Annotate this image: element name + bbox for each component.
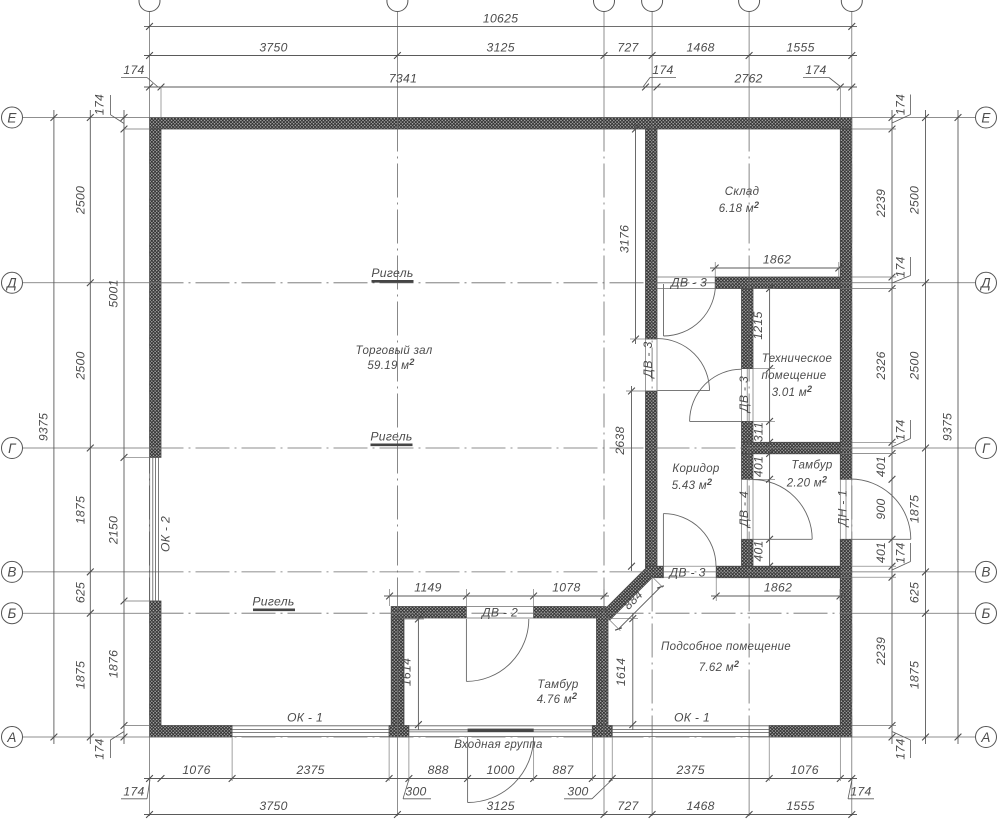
svg-text:1555: 1555 bbox=[786, 799, 814, 813]
svg-text:ДВ - 4: ДВ - 4 bbox=[737, 491, 751, 529]
svg-text:1875: 1875 bbox=[73, 661, 87, 689]
svg-text:Г: Г bbox=[8, 441, 17, 456]
svg-text:7.62 м2: 7.62 м2 bbox=[699, 659, 740, 674]
svg-text:ДВ - 3: ДВ - 3 bbox=[669, 275, 707, 289]
svg-text:Ригель: Ригель bbox=[370, 429, 412, 443]
svg-text:3176: 3176 bbox=[617, 225, 631, 253]
svg-text:Д: Д bbox=[979, 276, 991, 291]
svg-text:В: В bbox=[7, 565, 16, 580]
svg-text:2375: 2375 bbox=[295, 763, 324, 777]
svg-text:9375: 9375 bbox=[940, 413, 954, 441]
svg-text:2239: 2239 bbox=[874, 637, 888, 666]
svg-text:ОК - 1: ОК - 1 bbox=[674, 711, 710, 725]
svg-text:174: 174 bbox=[893, 94, 907, 115]
svg-text:помещение: помещение bbox=[761, 370, 826, 382]
svg-text:6.18 м2: 6.18 м2 bbox=[719, 200, 760, 215]
svg-text:5001: 5001 bbox=[106, 279, 120, 307]
svg-text:888: 888 bbox=[428, 763, 449, 777]
svg-text:2375: 2375 bbox=[676, 763, 705, 777]
svg-text:1468: 1468 bbox=[686, 799, 714, 813]
svg-text:ДВ - 3: ДВ - 3 bbox=[668, 565, 706, 579]
svg-text:Торговый зал: Торговый зал bbox=[356, 345, 433, 357]
svg-text:Г: Г bbox=[982, 441, 991, 456]
svg-text:174: 174 bbox=[123, 63, 144, 77]
svg-text:174: 174 bbox=[123, 785, 144, 799]
svg-text:Склад: Склад bbox=[725, 186, 759, 198]
svg-text:625: 625 bbox=[907, 582, 921, 603]
svg-text:401: 401 bbox=[751, 456, 765, 477]
svg-text:2239: 2239 bbox=[874, 189, 888, 218]
svg-text:174: 174 bbox=[850, 785, 871, 799]
svg-text:401: 401 bbox=[874, 456, 888, 477]
svg-text:3750: 3750 bbox=[259, 40, 287, 54]
svg-text:174: 174 bbox=[652, 63, 673, 77]
svg-text:2500: 2500 bbox=[73, 351, 87, 380]
svg-text:311: 311 bbox=[751, 422, 765, 442]
svg-text:2638: 2638 bbox=[613, 426, 627, 455]
svg-text:174: 174 bbox=[893, 738, 907, 759]
svg-text:174: 174 bbox=[805, 63, 826, 77]
svg-text:300: 300 bbox=[405, 785, 426, 799]
svg-text:ДВ - 3: ДВ - 3 bbox=[737, 376, 751, 414]
svg-text:727: 727 bbox=[617, 40, 639, 54]
svg-text:174: 174 bbox=[893, 256, 907, 277]
svg-text:3.01 м2: 3.01 м2 bbox=[772, 384, 813, 399]
svg-text:887: 887 bbox=[552, 763, 574, 777]
svg-text:1876: 1876 bbox=[106, 650, 120, 678]
svg-text:ОК - 2: ОК - 2 bbox=[159, 516, 173, 552]
svg-text:727: 727 bbox=[617, 799, 639, 813]
svg-text:1076: 1076 bbox=[791, 763, 819, 777]
svg-text:1215: 1215 bbox=[751, 311, 765, 339]
svg-text:Б: Б bbox=[7, 606, 16, 621]
svg-text:ДВ - 2: ДВ - 2 bbox=[480, 606, 518, 620]
svg-text:А: А bbox=[980, 730, 990, 745]
svg-text:1555: 1555 bbox=[786, 40, 814, 54]
svg-text:900: 900 bbox=[874, 498, 888, 519]
svg-text:2500: 2500 bbox=[907, 351, 921, 380]
svg-text:Д: Д bbox=[5, 276, 17, 291]
svg-text:1468: 1468 bbox=[686, 40, 714, 54]
svg-text:401: 401 bbox=[874, 542, 888, 563]
svg-text:А: А bbox=[6, 730, 16, 745]
svg-text:В: В bbox=[981, 565, 990, 580]
svg-text:174: 174 bbox=[92, 94, 106, 115]
svg-text:2762: 2762 bbox=[733, 71, 762, 85]
svg-text:Ригель: Ригель bbox=[371, 266, 413, 280]
svg-text:ДН - 1: ДН - 1 bbox=[836, 490, 850, 529]
svg-text:Входная группа: Входная группа bbox=[454, 739, 542, 751]
svg-text:5.43 м2: 5.43 м2 bbox=[672, 477, 713, 492]
svg-text:1862: 1862 bbox=[763, 253, 791, 267]
svg-text:174: 174 bbox=[92, 738, 106, 759]
svg-text:Техническое: Техническое bbox=[762, 353, 833, 365]
svg-text:Тамбур: Тамбур bbox=[791, 460, 833, 472]
svg-text:1614: 1614 bbox=[614, 658, 628, 686]
svg-text:174: 174 bbox=[893, 419, 907, 440]
svg-text:401: 401 bbox=[751, 540, 765, 561]
svg-text:625: 625 bbox=[73, 582, 87, 603]
svg-text:Ригель: Ригель bbox=[252, 594, 294, 608]
svg-text:3750: 3750 bbox=[259, 799, 287, 813]
svg-text:10625: 10625 bbox=[483, 12, 518, 26]
svg-text:Подсобное помещение: Подсобное помещение bbox=[661, 641, 791, 653]
svg-text:2326: 2326 bbox=[874, 351, 888, 380]
svg-text:Б: Б bbox=[981, 606, 990, 621]
svg-text:7341: 7341 bbox=[389, 71, 417, 85]
svg-text:2500: 2500 bbox=[907, 186, 921, 215]
svg-text:300: 300 bbox=[567, 785, 588, 799]
svg-text:2500: 2500 bbox=[73, 186, 87, 215]
svg-text:Е: Е bbox=[7, 110, 17, 125]
svg-text:1875: 1875 bbox=[907, 661, 921, 689]
svg-text:ДВ - 3: ДВ - 3 bbox=[641, 341, 655, 379]
svg-text:1875: 1875 bbox=[907, 495, 921, 523]
svg-text:ОК - 1: ОК - 1 bbox=[287, 711, 323, 725]
svg-text:59.19 м2: 59.19 м2 bbox=[367, 357, 414, 372]
svg-text:4.76 м2: 4.76 м2 bbox=[537, 691, 578, 706]
svg-text:Коридор: Коридор bbox=[672, 463, 720, 475]
svg-text:1000: 1000 bbox=[486, 763, 514, 777]
svg-text:3125: 3125 bbox=[487, 40, 515, 54]
svg-text:1875: 1875 bbox=[73, 496, 87, 524]
svg-text:1862: 1862 bbox=[764, 581, 792, 595]
svg-text:Тамбур: Тамбур bbox=[537, 679, 579, 691]
svg-text:174: 174 bbox=[893, 542, 907, 563]
svg-text:1076: 1076 bbox=[182, 763, 210, 777]
svg-text:1149: 1149 bbox=[414, 581, 441, 595]
svg-text:2.20 м2: 2.20 м2 bbox=[786, 474, 828, 489]
svg-text:1614: 1614 bbox=[400, 658, 414, 686]
svg-text:2150: 2150 bbox=[106, 516, 120, 545]
svg-text:1078: 1078 bbox=[552, 581, 580, 595]
svg-text:9375: 9375 bbox=[37, 413, 51, 441]
svg-text:Е: Е bbox=[981, 110, 991, 125]
svg-text:3125: 3125 bbox=[487, 799, 515, 813]
